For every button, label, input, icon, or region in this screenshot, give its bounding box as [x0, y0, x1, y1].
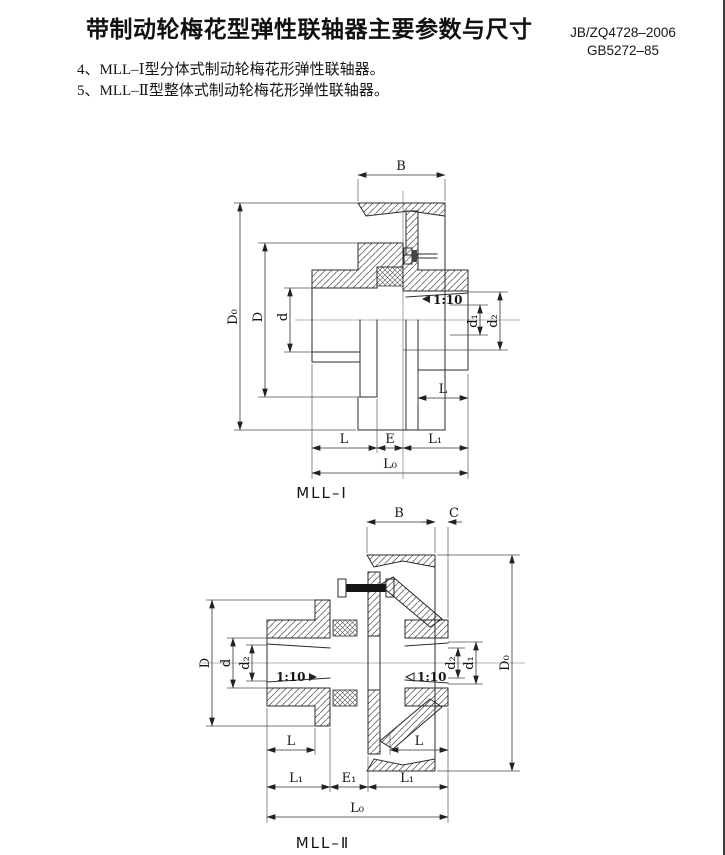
dim-label-taper-left: 1:10	[276, 670, 305, 684]
dim-label-taper-right: 1:10	[417, 670, 446, 684]
dim-label-d1: d₁	[466, 314, 481, 328]
note-item-4: 4、MLL–Ⅰ型分体式制动轮梅花形弹性联轴器。	[77, 60, 389, 81]
note-item-5: 5、MLL–Ⅱ型整体式制动轮梅花形弹性联轴器。	[77, 81, 389, 102]
standard-numbers: JB/ZQ4728–2006 GB5272–85	[556, 24, 690, 60]
standard-number-1: JB/ZQ4728–2006	[556, 24, 690, 42]
figure-mll-2: 1:10 1:10 B C D₀ D d d₂ d₂ d₁ L L L₁ E₁ …	[190, 505, 725, 855]
dim-label-d0: D₀	[498, 655, 513, 671]
document-page: 带制动轮梅花型弹性联轴器主要参数与尺寸 JB/ZQ4728–2006 GB527…	[0, 0, 725, 855]
dim-label-d1-right: d₁	[462, 656, 477, 670]
brake-band-top	[367, 555, 435, 567]
figure2-extension-lines	[206, 527, 520, 823]
elastomer-spider-top	[333, 620, 357, 636]
dim-label-l0: L₀	[350, 801, 364, 816]
dim-label-l1: L₁	[428, 432, 442, 447]
standard-number-2: GB5272–85	[556, 42, 690, 60]
figure2-caption: MLL–Ⅱ	[296, 834, 351, 852]
right-hub-section-top	[405, 620, 448, 638]
notes-list: 4、MLL–Ⅰ型分体式制动轮梅花形弹性联轴器。 5、MLL–Ⅱ型整体式制动轮梅花…	[77, 60, 389, 102]
flange-disc-bottom	[368, 690, 380, 754]
dim-label-b: B	[394, 506, 404, 521]
brake-band-bottom	[367, 759, 435, 771]
figure1-dimension-lines	[240, 175, 500, 473]
dim-label-d2-left: d₂	[238, 656, 253, 670]
dim-label-l-right: L	[439, 382, 448, 397]
dim-label-l1-left: L₁	[289, 771, 303, 786]
dim-label-c: C	[449, 506, 459, 521]
elastomer-spider-bottom	[333, 690, 357, 706]
figure1-extension-lines	[234, 179, 508, 479]
dim-label-taper: 1:10	[433, 293, 462, 307]
flange-bolt	[338, 579, 394, 597]
dim-label-b: B	[396, 159, 406, 174]
left-hub-section-bottom	[267, 688, 330, 726]
figure1-caption: MLL–Ⅰ	[296, 484, 348, 502]
figure-mll-1: 1:10 B D₀ D d d₁ d₂ L L E L₁ L₀ MLL–Ⅰ	[200, 155, 725, 505]
dim-label-d0: D₀	[226, 309, 241, 325]
brake-band-section	[358, 203, 445, 216]
dim-label-d-small: d	[219, 659, 234, 667]
dim-label-d-big: D	[251, 312, 266, 322]
dim-label-d-big: D	[198, 658, 213, 668]
elastomer-spider-section	[377, 267, 403, 286]
page-title: 带制动轮梅花型弹性联轴器主要参数与尺寸	[86, 10, 533, 44]
dim-label-e: E	[385, 432, 395, 447]
flange-disc-top	[368, 572, 380, 636]
dim-label-l: L	[340, 432, 349, 447]
taper-arrow-right-icon	[309, 673, 317, 681]
dim-label-d2-right: d₂	[444, 656, 459, 670]
dim-label-d-small: d	[276, 313, 291, 321]
dim-label-l1-right: L₁	[400, 771, 414, 786]
dim-label-l0: L₀	[383, 457, 397, 472]
dim-label-l-right: L	[415, 734, 424, 749]
dim-label-l-left: L	[287, 734, 296, 749]
left-hub-section-top	[267, 600, 330, 638]
dim-label-d2: d₂	[486, 314, 501, 328]
right-hub-section-bottom	[405, 688, 448, 706]
dim-label-e1: E₁	[342, 771, 357, 786]
